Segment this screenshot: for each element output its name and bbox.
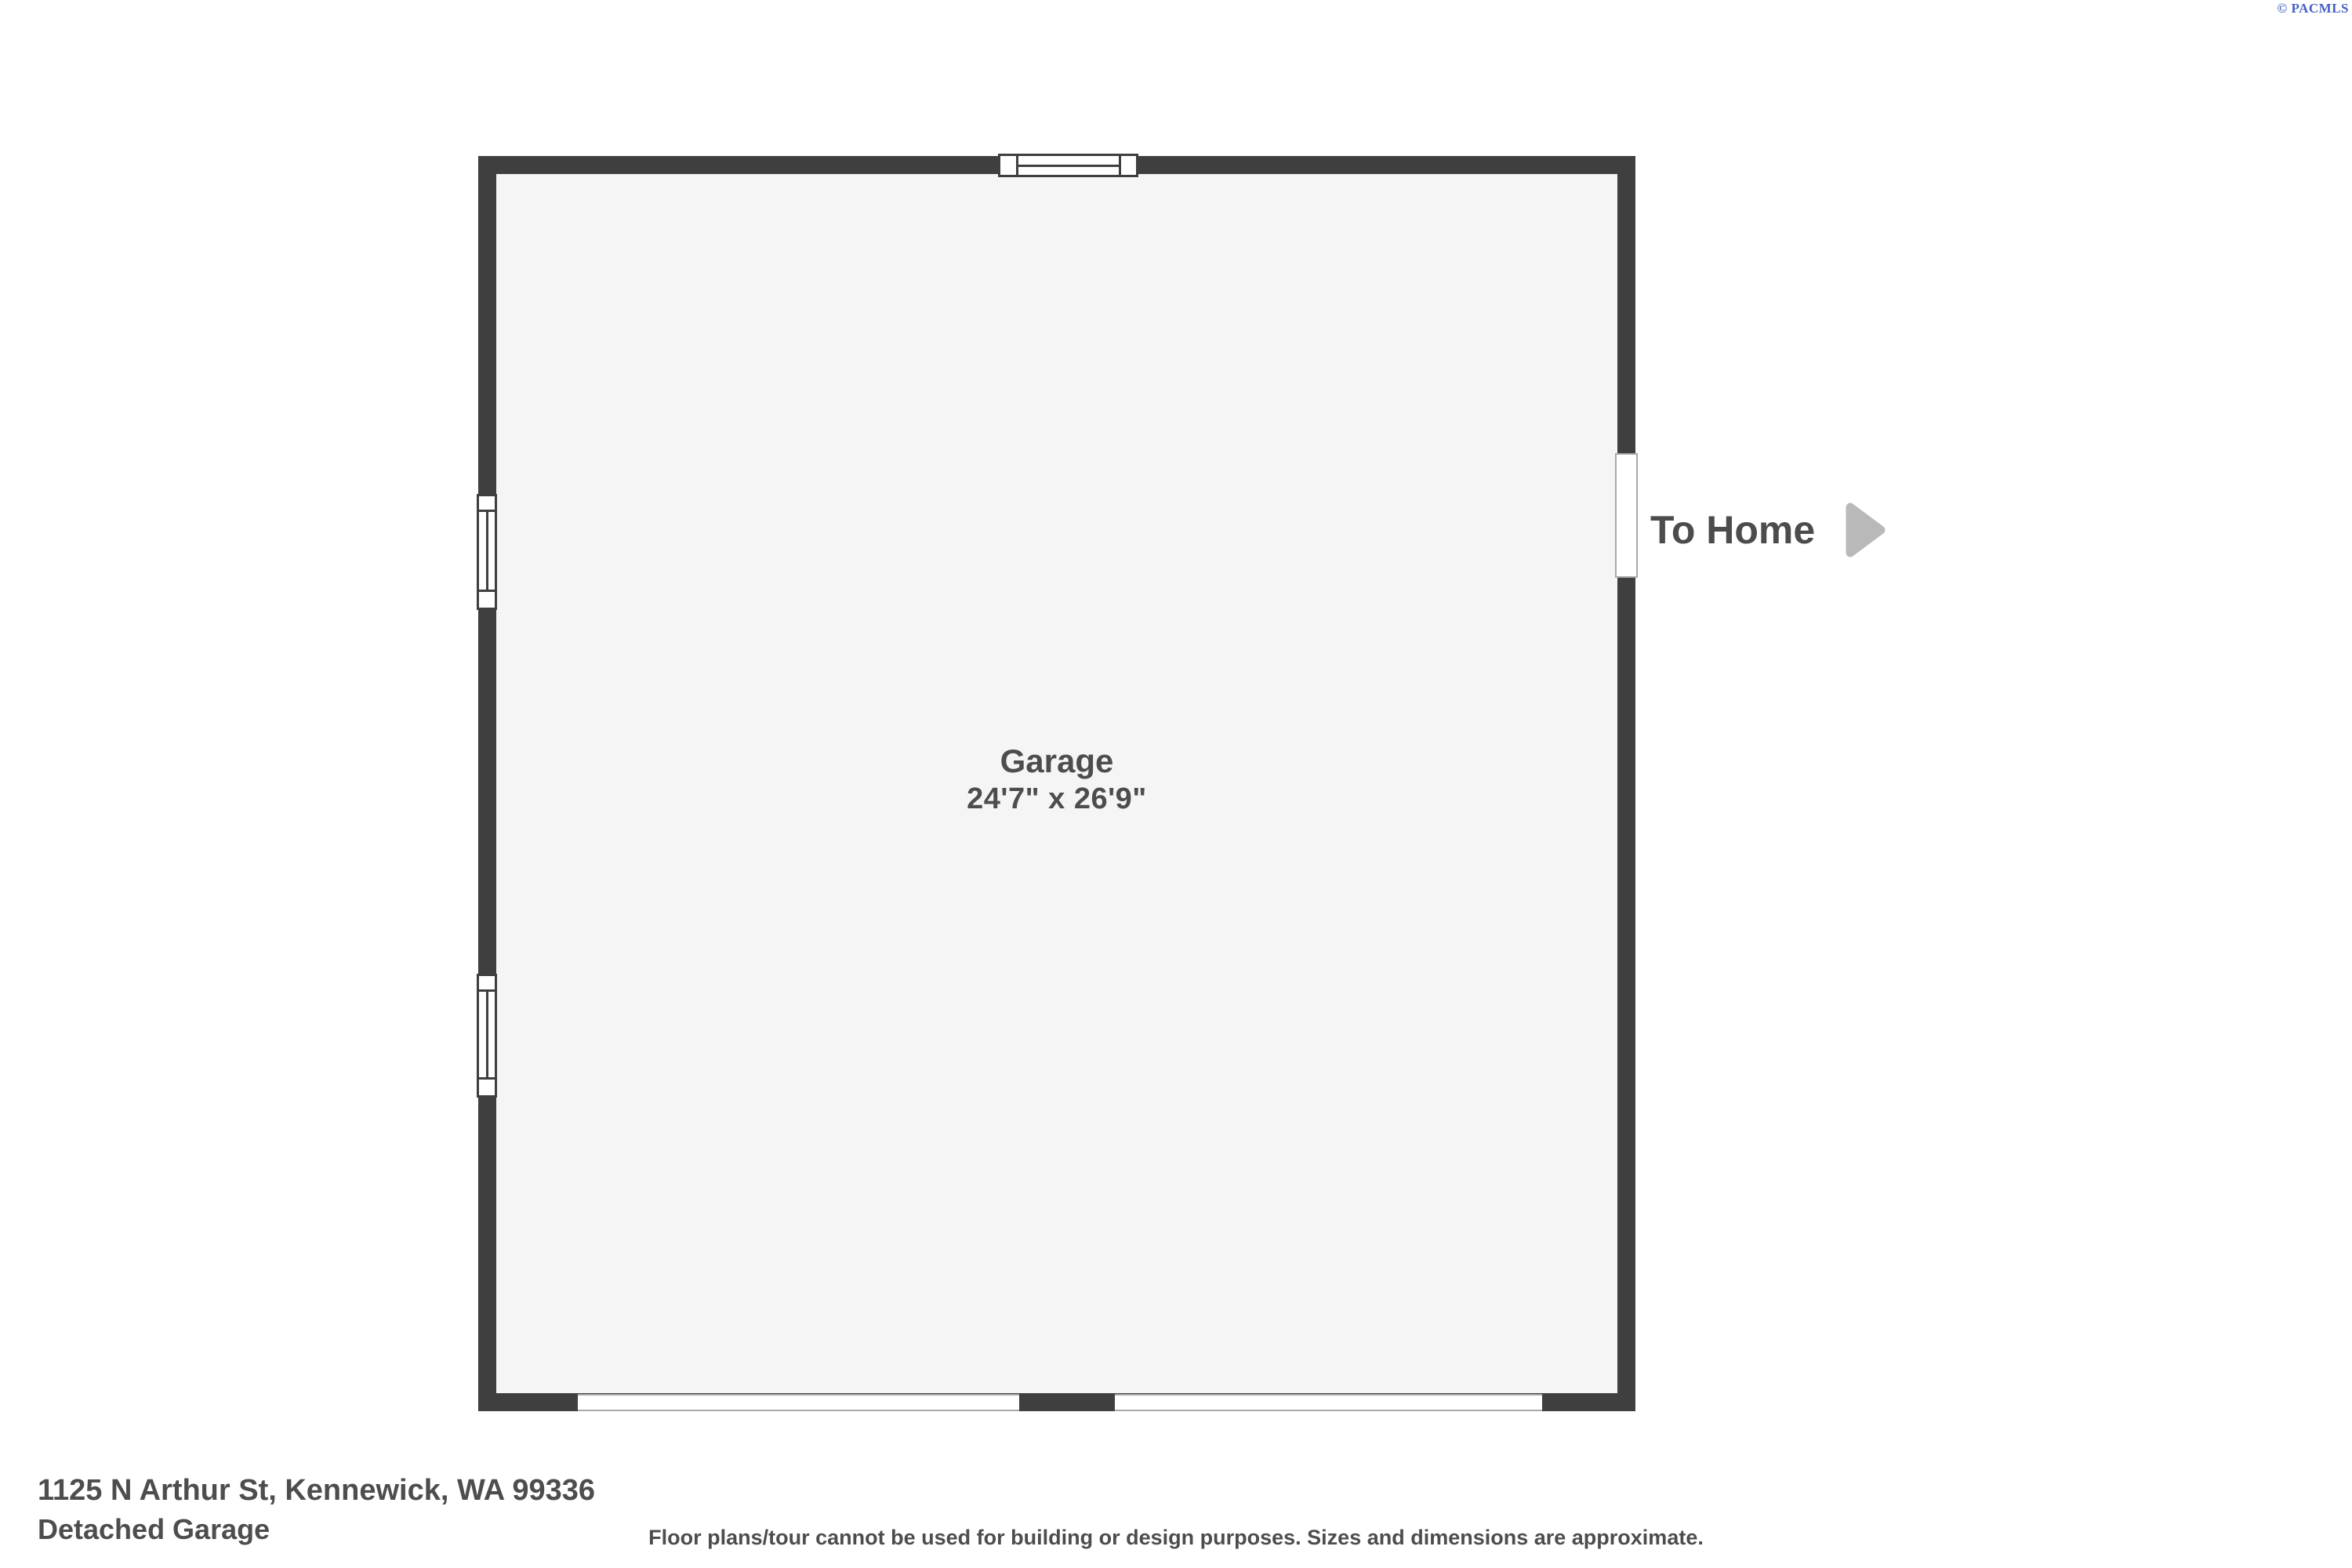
room-dimensions: 24'7" x 26'9" — [478, 783, 1635, 816]
to-home-label: To Home — [1650, 510, 1815, 550]
room-label-group: Garage 24'7" x 26'9" — [478, 742, 1635, 816]
window-pane — [479, 496, 495, 512]
window-pane — [479, 512, 495, 590]
garage-door-opening-left — [578, 1394, 1019, 1411]
window-pane — [479, 976, 495, 992]
floor-plan-page: © PACMLS Garage 24'7" x 26'9" — [0, 0, 2352, 1568]
window-pane — [479, 992, 495, 1077]
window-top-icon — [998, 154, 1138, 177]
window-left-upper-icon — [477, 494, 497, 610]
property-address: 1125 N Arthur St, Kennewick, WA 99336 — [38, 1474, 595, 1508]
copyright-watermark: © PACMLS — [2278, 1, 2349, 16]
room-name: Garage — [478, 742, 1635, 780]
to-home-link[interactable]: To Home — [1650, 500, 1887, 560]
disclaimer-text: Floor plans/tour cannot be used for buil… — [0, 1526, 2352, 1550]
door-opening-to-home — [1615, 453, 1638, 578]
window-pane — [1000, 156, 1018, 175]
garage-floor-plan: Garage 24'7" x 26'9" — [478, 156, 1635, 1411]
garage-door-opening-right — [1115, 1394, 1542, 1411]
window-left-lower-icon — [477, 974, 497, 1098]
window-pane — [479, 590, 495, 608]
window-pane — [1119, 156, 1136, 175]
window-pane — [1018, 156, 1119, 175]
arrow-right-icon[interactable] — [1845, 500, 1887, 560]
window-pane — [479, 1077, 495, 1095]
